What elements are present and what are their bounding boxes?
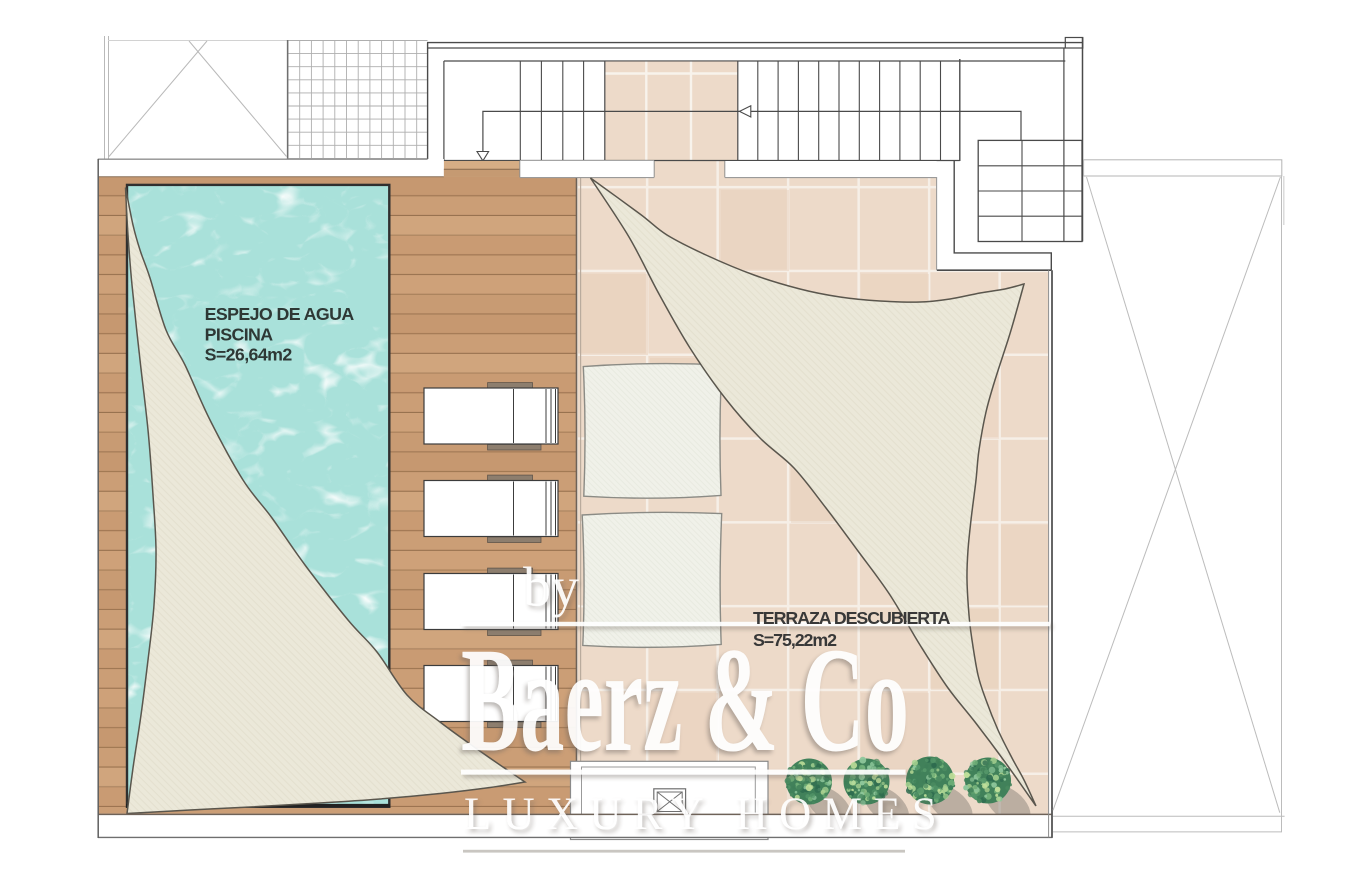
svg-text:Baerz & Co: Baerz & Co	[461, 617, 909, 783]
svg-text:S=75,22m2: S=75,22m2	[753, 630, 837, 650]
svg-text:PISCINA: PISCINA	[205, 325, 274, 345]
svg-text:S=26,64m2: S=26,64m2	[205, 344, 293, 364]
svg-text:TERRAZA DESCUBIERTA: TERRAZA DESCUBIERTA	[753, 608, 951, 628]
svg-text:by: by	[523, 557, 579, 619]
svg-text:ESPEJO DE AGUA: ESPEJO DE AGUA	[205, 304, 355, 324]
svg-text:LUXURY HOMES: LUXURY HOMES	[464, 788, 948, 840]
